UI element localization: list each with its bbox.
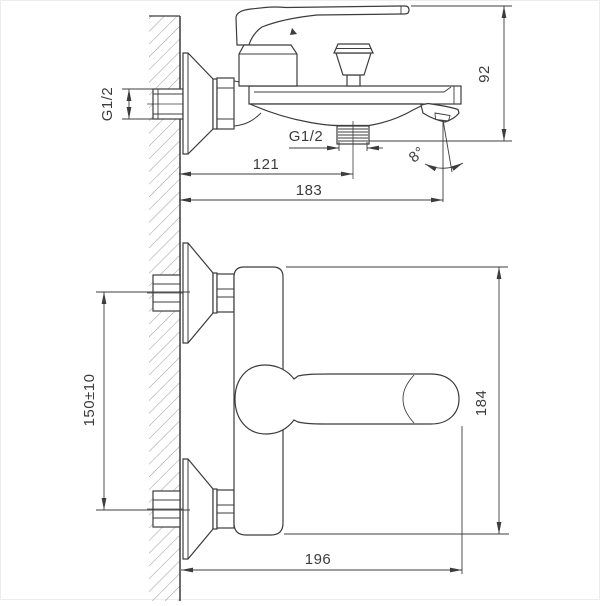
front-handle <box>235 365 459 434</box>
side-under-body <box>250 104 422 126</box>
front-view <box>147 243 459 559</box>
handle-indicator-mark <box>290 28 297 35</box>
side-shower-outlet-thread <box>337 121 369 179</box>
label-wall-to-spout-183: 183 <box>296 182 323 199</box>
label-overall-depth-196: 196 <box>305 551 332 568</box>
label-spout-angle: 8° <box>406 143 429 166</box>
label-inlet-thread-side: G1/2 <box>99 87 116 122</box>
side-spout-tip <box>421 104 459 123</box>
side-cartridge-housing <box>239 45 297 86</box>
label-wall-to-outlet-121: 121 <box>253 156 280 173</box>
front-lower-nut <box>217 490 234 528</box>
label-inlet-spacing-150: 150±10 <box>81 374 98 427</box>
front-lower-escutcheon <box>183 459 234 559</box>
drawing-canvas: G1/2 92 G1/2 8° 121 183 150±10 184 196 <box>1 1 600 601</box>
drawing-page: G1/2 92 G1/2 8° 121 183 150±10 184 196 <box>0 0 600 600</box>
label-height-92: 92 <box>476 65 493 83</box>
front-upper-escutcheon <box>183 243 234 343</box>
side-handle-lever <box>236 6 409 45</box>
side-diverter-knob <box>334 44 373 86</box>
side-body-bar <box>249 86 461 104</box>
front-upper-nut <box>217 274 234 312</box>
dimension-spout-angle <box>425 120 463 202</box>
label-outlet-thread: G1/2 <box>289 128 324 145</box>
label-overall-height-184: 184 <box>473 390 490 417</box>
side-wall-nut <box>217 78 234 129</box>
